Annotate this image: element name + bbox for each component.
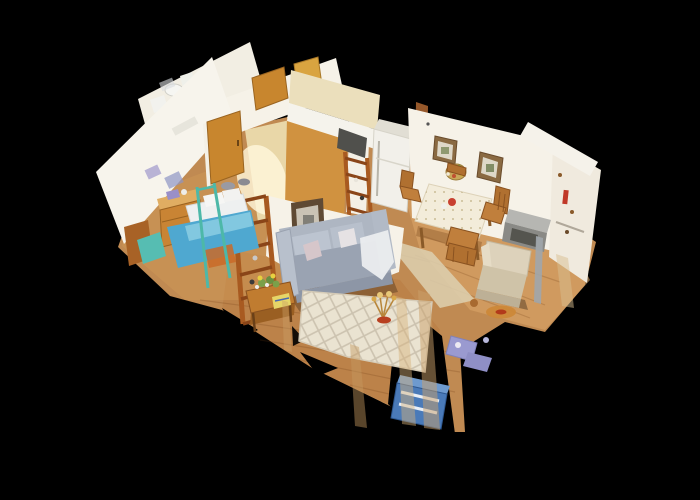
table-cup: [441, 203, 447, 209]
wood-stool: [470, 299, 478, 307]
viewer-stage: [0, 0, 700, 500]
dollhouse-3d-canvas[interactable]: [0, 0, 700, 500]
armchair: [475, 241, 531, 310]
round-orange-rug: [486, 306, 516, 319]
open-wood-door: [207, 111, 244, 184]
red-bowl: [377, 317, 391, 324]
wall-dot: [426, 122, 429, 125]
table-vase: [448, 198, 456, 206]
dining-picture-1: [433, 136, 457, 164]
dining-picture-2: [477, 152, 503, 183]
dresser-item-white: [181, 189, 187, 195]
